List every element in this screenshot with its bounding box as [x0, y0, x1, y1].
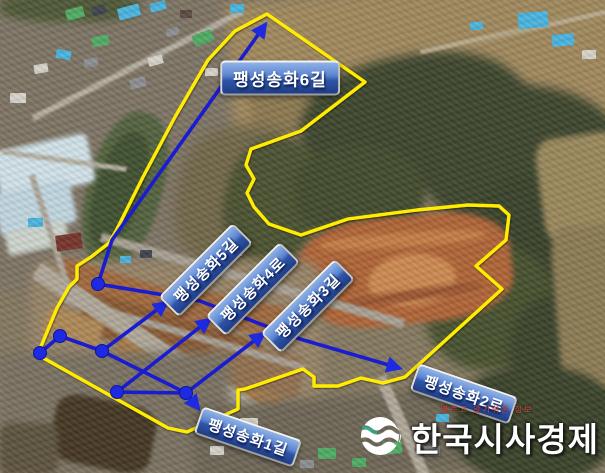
road-label-route-6: 팽성송화6길: [220, 61, 340, 96]
logo-wave-icon: [359, 415, 405, 459]
road-label-route-1: 팽성송화1길: [193, 406, 302, 468]
logo-slogan: 빠르고 알기쉬운 정보: [441, 404, 534, 415]
logo-text-wrap: 빠르고 알기쉬운 정보 한국시사경제: [411, 413, 599, 461]
aerial-map: 팽성송화6길팽성송화5길팽성송화4로팽성송화3길팽성송화2로팽성송화1길 빠르고…: [0, 0, 605, 473]
road-labels: 팽성송화6길팽성송화5길팽성송화4로팽성송화3길팽성송화2로팽성송화1길: [0, 0, 605, 473]
logo-name: 한국시사경제: [411, 413, 599, 461]
logo: 빠르고 알기쉬운 정보 한국시사경제: [359, 413, 599, 461]
